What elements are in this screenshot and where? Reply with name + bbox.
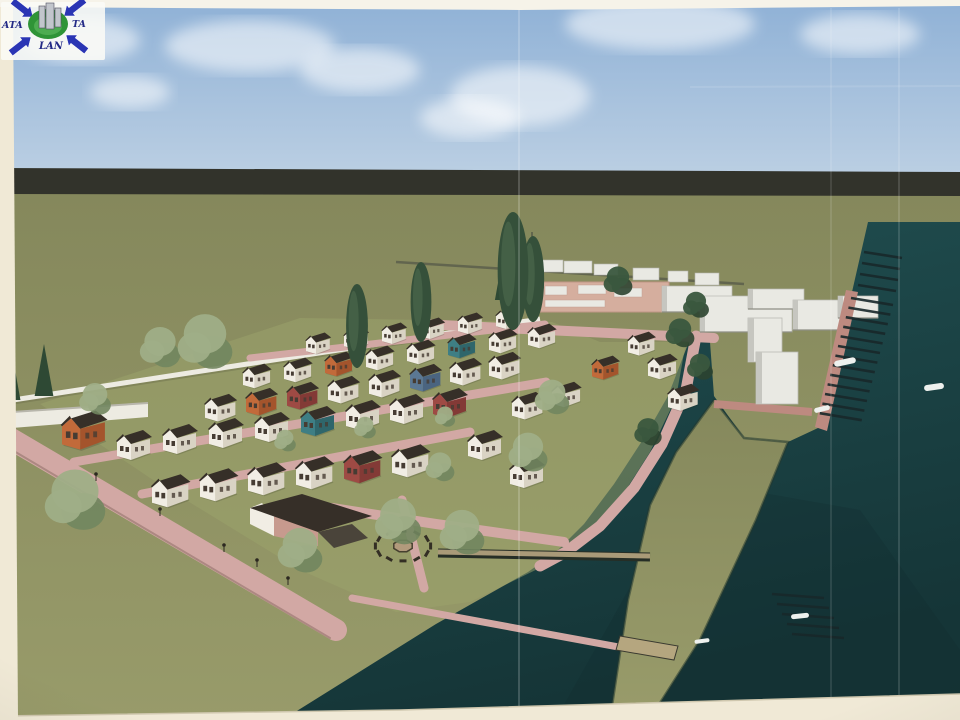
tall-building-2 [756, 352, 798, 404]
tall-building-1-side [748, 318, 754, 362]
logo-text-right: TA [72, 19, 86, 30]
sky-layer [0, 0, 960, 198]
logo-text-left: ATA [1, 20, 23, 31]
tall-building-2-side [756, 352, 762, 404]
horizon-treeline-band [0, 168, 960, 198]
architectural-rendering-photo: ATA TA LAN [0, 0, 960, 720]
atalanta-logo: ATA TA LAN [1, 0, 105, 60]
horizontal-crease [690, 86, 960, 87]
logo-text-bottom: LAN [38, 41, 64, 52]
photographed-site-plan: ATA TA LAN [0, 0, 960, 720]
